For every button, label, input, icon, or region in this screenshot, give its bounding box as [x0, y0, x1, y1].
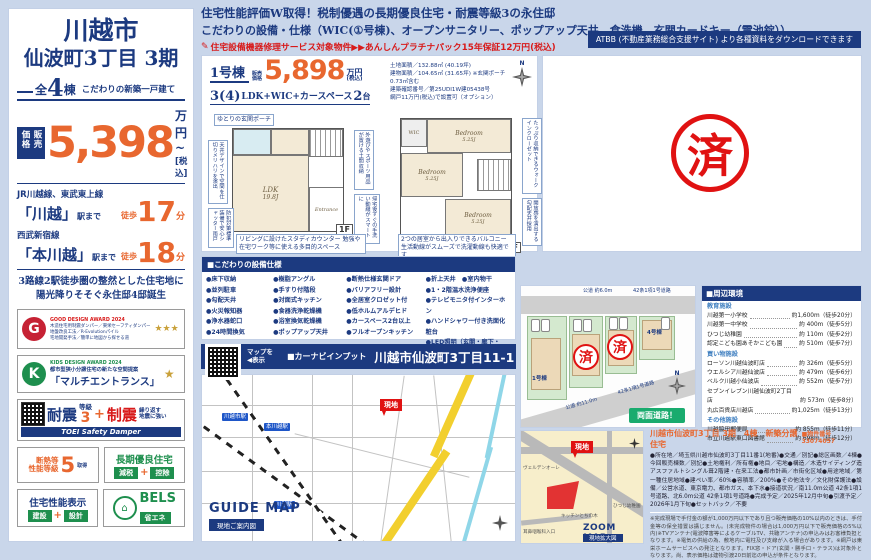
price-tax: [税込] — [175, 155, 187, 179]
good-design-line-3: 宅地開発手法／簡単に地図から探せる道 — [50, 335, 150, 341]
poi-label: ひつじ幼稚園 — [613, 503, 641, 509]
taishin-grade-number: 3 — [81, 411, 91, 425]
bedroom-label: Bedroom — [464, 212, 492, 219]
floorplan-1f: LDK 19.8J Entrance 1F — [232, 128, 344, 232]
bedroom-3: Bedroom 5.25J — [445, 199, 511, 237]
bedroom-size: 5.25J — [425, 176, 438, 182]
equipment-item: ●火災報知器 — [206, 307, 273, 318]
dannetsu-number: 5 — [60, 453, 75, 477]
callout-porch: ゆとりの玄関ポーチ — [214, 114, 274, 126]
access-to-2: 駅まで — [92, 252, 116, 263]
unit-price: 5,898 — [264, 60, 344, 83]
equipment-item: ●浴室換気乾燥機 — [273, 317, 346, 328]
bedroom-label: Bedroom — [455, 130, 483, 137]
compass-icon: N — [511, 60, 533, 91]
seishin-label: 制震 — [107, 404, 137, 425]
env-row: 川越第一中学校約 400m（徒歩5分） — [707, 321, 856, 330]
bathroom — [233, 129, 271, 155]
equipment-item: ●浄水器蛇口 — [206, 317, 273, 328]
road-top — [521, 296, 696, 314]
toei-safety-damper-bar: TOEI Safety Damper — [21, 427, 181, 437]
stairs-1f — [309, 129, 343, 157]
access-block: JR川越線、東武東上線 「川越」 駅まで 徒歩 17 分 西武新宿線 「本川越」… — [17, 183, 185, 270]
bedroom-size: 5.25J — [462, 137, 475, 143]
price-unit: 万円~ — [175, 107, 187, 155]
carnavi-label: ■カーナビインプット — [287, 351, 366, 362]
equipment-item: ●断熱仕様玄関ドア — [346, 275, 425, 286]
equipment-item: ●床下収納 — [206, 275, 273, 286]
overview-title: 川越市仙波町3丁目 3期 4棟 新築分譲住宅 — [650, 428, 802, 450]
catch-line-1: 3路線2駅徒歩圏の整然とした住宅地に — [17, 275, 185, 289]
sold-stamp-lot3: 済 — [607, 334, 633, 360]
lot-4-label: 4号棟 — [647, 328, 662, 336]
price-label: 販売価格 — [17, 127, 45, 159]
plan-type: LDK+WIC+カースペース — [241, 89, 352, 102]
star-icon: ★★★ — [154, 325, 168, 334]
ldk-size: 19.8J — [263, 194, 279, 201]
env-group-education: 教育施設 — [707, 302, 856, 312]
choki-badge: 長期優良住宅 減税 + 控除 — [104, 447, 185, 483]
car-icon — [541, 319, 550, 332]
double-road-badge: 両面道路！ — [629, 408, 685, 423]
taishin-label: 耐震 — [47, 404, 77, 425]
environment-title: ■周辺環境 — [702, 286, 861, 301]
zoom-map: 現地 ヴェルデンオーレ キッチンとちの木 ひつじ幼稚園 耳鼻咽喉科入口 ZOOM… — [520, 430, 644, 544]
station-kawagoeshi: 川越市駅 — [222, 413, 248, 421]
equipment-card: ■こだわりの設備仕様 ●床下収納 ●並列駐車 ●勾配天井 ●火災報知器 ●浄水器… — [201, 256, 516, 340]
walk-unit-1: 分 — [176, 209, 185, 222]
env-row: ひつじ幼稚園約 110m（徒歩2分） — [707, 331, 856, 340]
land-area: 土地面積／132.88㎡ (40.19坪) — [390, 62, 508, 70]
kitchen — [271, 129, 309, 155]
overview-block: 川越市仙波町3丁目 3期 4棟 新築分譲住宅 ■物件番号 33074057 ●所… — [650, 428, 862, 546]
plus-icon: + — [94, 407, 105, 422]
car-icon — [573, 319, 582, 332]
city-title: 川越市 — [17, 17, 185, 46]
car-icon — [609, 317, 618, 330]
env-group-other: その他施設 — [707, 416, 856, 426]
compass-n-label: N — [511, 60, 533, 67]
screen-option: 網戸11万円(税込)で設置可（オプション） — [390, 94, 508, 102]
flyer-page: 川越市 仙波町3丁目 3期 全 4 棟 こだわりの新築一戸建て 販売価格 5,3… — [0, 0, 871, 550]
hyoji-title: 住宅性能表示 — [29, 495, 86, 509]
equipment-item: ●ポップアップ天井 — [273, 328, 346, 339]
ldk-label: LDK — [263, 186, 279, 194]
car-icon — [661, 317, 670, 330]
kids-design-line-1: 都市型狭小分譲住宅の新たな空間提案 — [50, 366, 160, 373]
env-row: ウエルシア川越仙波店約 479m（徒歩6分） — [707, 369, 856, 378]
site-plan: 公道 約6.0m 42条1項1号道路 公道 約11.0m 42条1項1号道路 1… — [520, 285, 696, 428]
poi-label: 耳鼻咽喉科入口 — [523, 529, 555, 535]
walk-min-1: 17 — [137, 200, 176, 224]
equipment-title: ■こだわりの設備仕様 — [202, 257, 515, 272]
equipment-item: ●全居室クロゼット付 — [346, 296, 425, 307]
wic-room: WIC — [401, 119, 427, 147]
river-line — [459, 447, 493, 542]
road-top-name: 42条1項1号道路 — [633, 287, 671, 294]
overview-disclaimer: ※完成現場で手付金の額が1,000万円以下であり且つ販売価格の10%以内のときは… — [650, 516, 862, 560]
walk-label-1: 徒歩 — [121, 210, 137, 221]
choki-kojo-label: 控除 — [150, 467, 174, 479]
top-header: 住宅性能評価W取得！税制優遇の長期優良住宅・耐震等級3の永住邸 こだわりの設備・… — [201, 5, 863, 53]
env-row: ベルク川越小仙波店約 552m（徒歩7分） — [707, 378, 856, 387]
seishin-sub-2: 地震に強い — [139, 414, 167, 420]
equipment-item: ●樹脂アングル — [273, 275, 346, 286]
overview-body: ●所在地／埼玉県川越市仙波町3丁目11番1(地番)●交通／別記●総区画数／4棟●… — [650, 452, 862, 509]
bels-shoene-label: 省エネ — [140, 512, 171, 524]
atbb-banner: ATBB (不動産業務総合支援サイト) より各種資料をダウンロードできます — [588, 31, 861, 48]
bedroom-2: Bedroom 5.25J — [401, 153, 463, 197]
house-1 — [531, 338, 561, 390]
good-design-badge: G GOOD DESIGN AWARD 2024 木造住宅用制震ダンパー／東栄セ… — [17, 309, 185, 349]
plus-icon: + — [140, 467, 148, 478]
site-polygon — [547, 481, 579, 509]
plan-cars: 2 — [353, 91, 362, 103]
taishin-seishin-badge: 耐震 等級 3 + 制震 繰り返す 地震に強い TOEI Safety Damp… — [17, 399, 185, 441]
price-value: 5,398 — [47, 123, 173, 164]
kids-design-badge: K KIDS DESIGN AWARD 2024 都市型狭小分譲住宅の新たな空間… — [17, 355, 185, 393]
env-row: 川越第一小学校約1,600m（徒歩20分） — [707, 312, 856, 321]
car-icon — [583, 319, 592, 332]
access-row-2: 西武新宿線 「本川越」 駅まで 徒歩 18 分 — [17, 229, 185, 265]
car-icon — [619, 317, 628, 330]
equipment-item: ●手すり付階段 — [273, 286, 346, 297]
bels-title: BELS — [140, 492, 176, 505]
catch-line-2: 陽光降りそそぐ永住邸4邸誕生 — [17, 289, 185, 303]
equipment-item: ●勾配天井 — [206, 296, 273, 307]
site-marker: 現地 — [571, 441, 593, 453]
qr-code-icon — [205, 344, 241, 380]
header-line-3: 住宅設備機器修理サービス対象物件▶▶あんしんプラチナパック15年保証12万円(税… — [211, 40, 556, 53]
stairs-2f — [477, 159, 511, 191]
callout-v6: 開放感を演出する勾配天井採用 — [522, 198, 542, 246]
callout-v3: 外遊びやスポーツ用品が置ける土間収納 — [354, 130, 374, 190]
floorplan-2f: WIC Bedroom 5.25J Bedroom 5.25J Bedroom … — [400, 118, 512, 238]
ldk-room: LDK 19.8J — [233, 155, 309, 231]
property-number: ■物件番号 33074057 — [802, 429, 862, 445]
callout-v5: たっぷり収納できるウォークインクローゼット — [522, 118, 542, 194]
callout-v2: 防犯対策標準装備で安心シャッター雨戸 — [208, 208, 234, 248]
equipment-item: ●フルオープンキッチン — [346, 328, 425, 339]
compass-icon — [492, 515, 508, 535]
compass-icon: N — [667, 370, 687, 399]
equipment-item: ●24時間換気 — [206, 328, 273, 339]
railway-line — [218, 374, 352, 542]
guide-map: 川越市駅 本川越駅 川越駅 現地 GUIDE MAP 現地ご案内図 — [201, 374, 516, 542]
pencil-icon: ✎ — [201, 42, 209, 52]
lot-details: 土地面積／132.88㎡ (40.19坪) 建物面積／104.65㎡ (31.6… — [390, 62, 508, 102]
carnavi-bar: マップを ◀表示 ■カーナビインプット 川越市仙波町3丁目11-1 — [201, 344, 516, 369]
dannetsu-badge: 断熱等 性能等級 5 取得 — [17, 447, 99, 483]
kids-design-logo-icon: K — [22, 362, 46, 386]
price-unit-block: 万円~ [税込] — [175, 107, 187, 179]
count-number: 4 — [47, 77, 64, 99]
sidebar: 川越市 仙波町3丁目 3期 全 4 棟 こだわりの新築一戸建て 販売価格 5,3… — [8, 8, 194, 542]
dannetsu-line-2: 性能等級 — [28, 465, 58, 473]
equipment-item: ●低ホルムアルデヒド — [346, 307, 425, 318]
sold-stamp: 済 — [671, 114, 749, 192]
star-icon: ★ — [164, 367, 175, 381]
dash-decoration — [17, 91, 33, 93]
kids-design-title: 「マルチエントランス」 — [50, 373, 160, 388]
price-row: 販売価格 5,398 万円~ [税込] — [17, 107, 185, 179]
station-honkawagoe: 本川越駅 — [264, 423, 290, 431]
zoom-map-subtitle: 現地拡大図 — [583, 534, 623, 542]
access-row-1: JR川越線、東武東上線 「川越」 駅まで 徒歩 17 分 — [17, 188, 185, 224]
access-to-1: 駅まで — [77, 211, 101, 222]
equipment-item: ●折上天井 ●室内物干 — [426, 275, 511, 286]
access-station-1: 「川越」 — [17, 203, 77, 224]
env-row: ローソン川越仙波町店約 326m（徒歩5分） — [707, 360, 856, 369]
callout-v1: 天井デザインで空間を仕切りメリハリを演出 — [208, 140, 228, 204]
dannetsu-get-label: 取得 — [77, 462, 87, 469]
plan-rooms: 3(4) — [210, 91, 240, 103]
equipment-item: ●ハンドシャワー付き洗面化粧台 — [426, 317, 511, 338]
plus-icon: + — [54, 510, 62, 521]
building-area: 建物面積／104.65㎡ (31.65坪) ※玄関ポーチ0.73㎡含む — [390, 70, 508, 86]
count-prefix: 全 — [35, 81, 47, 98]
unit-price-tax: (税込) — [346, 77, 362, 83]
catch-copy: 3路線2駅徒歩圏の整然とした住宅地に 陽光降りそそぐ永住邸4邸誕生 — [17, 275, 185, 304]
walk-min-2: 18 — [137, 241, 176, 265]
environment-card: ■周辺環境 教育施設 川越第一小学校約1,600m（徒歩20分） 川越第一中学校… — [701, 285, 862, 428]
site-marker: 現地 — [380, 399, 402, 411]
choki-genzei-label: 減税 — [114, 467, 138, 479]
equipment-item: ●並列駐車 — [206, 286, 273, 297]
equipment-item: ●食器洗浄乾燥機 — [273, 307, 346, 318]
bedroom-size: 5.25J — [471, 219, 484, 225]
plan-cars-unit: 台 — [362, 91, 370, 102]
tagline: こだわりの新築一戸建て — [82, 83, 176, 95]
car-icon — [531, 319, 540, 332]
hyoji-kensetsu-label: 建設 — [28, 510, 52, 522]
equipment-item: ●バリアフリー設計 — [346, 286, 425, 297]
sold-stamp-lot2: 済 — [573, 344, 599, 370]
callout-study: リビングに設けたスタディカウンター 勉強や在宅ワーク等に使える多目的スペース — [236, 234, 366, 254]
river-line — [485, 374, 508, 458]
guide-map-title: GUIDE MAP — [209, 501, 301, 516]
compass-icon — [629, 434, 640, 453]
entrance-label: Entrance — [315, 207, 338, 213]
qr-code-icon — [21, 402, 45, 426]
env-row: 丸広百貨店川越店約1,025m（徒歩13分） — [707, 407, 856, 416]
road-top-label: 公道 約6.0m — [583, 287, 612, 294]
bels-badge: ⌂ BELS 省エネ — [103, 489, 185, 527]
confirmation-number: 建築確認番号／第25UDI1W建05438号 — [390, 86, 508, 94]
wic-label: WIC — [409, 130, 420, 136]
unit-price-label-2: 価格 — [252, 77, 262, 82]
env-group-shopping: 買い物施設 — [707, 350, 856, 360]
floorplan-card: 1号棟 販売 価格 5,898 万円 (税込) 3(4) LDK+WIC+カース… — [201, 55, 538, 252]
guide-map-subtitle: 現地ご案内図 — [209, 519, 264, 531]
unit-name: 1号棟 — [210, 62, 249, 83]
project-title: 仙波町3丁目 3期 — [17, 46, 185, 70]
carnavi-address: 川越市仙波町3丁目11-1 — [374, 347, 514, 366]
hyoji-badge: 住宅性能表示 建設 + 設計 — [17, 489, 98, 527]
stamp-card: 済 — [542, 55, 862, 252]
hyoji-sekkei-label: 設計 — [64, 510, 88, 522]
access-station-2: 「本川越」 — [17, 244, 92, 265]
walk-label-2: 徒歩 — [121, 251, 137, 262]
poi-label: キッチンとちの木 — [561, 513, 598, 519]
choki-title: 長期優良住宅 — [116, 452, 173, 466]
env-row: 認定こども園あそかこども園約 510m（徒歩7分） — [707, 340, 856, 349]
good-design-logo-icon: G — [22, 317, 46, 341]
bedroom-1: Bedroom 5.25J — [427, 119, 511, 153]
compass-n-label: N — [667, 370, 687, 377]
equipment-item: ●対面式キッチン — [273, 296, 346, 307]
env-row: セブンイレブン川越仙波町2丁目店約 573m（徒歩8分） — [707, 388, 856, 407]
equipment-item: ●カースペース2台以上 — [346, 317, 425, 328]
equipment-item: ●テレビモニタ付インターホン — [426, 296, 511, 317]
lot-1-label: 1号棟 — [532, 374, 547, 382]
bedroom-label: Bedroom — [418, 169, 446, 176]
walk-unit-2: 分 — [176, 250, 185, 263]
header-line-1: 住宅性能評価W取得！税制優遇の長期優良住宅・耐震等級3の永住邸 — [201, 5, 863, 21]
unit-count-row: 全 4 棟 こだわりの新築一戸建て — [17, 73, 185, 102]
overview-divider — [650, 512, 862, 513]
count-suffix: 棟 — [64, 81, 76, 98]
equipment-item: ●1・2階温水洗浄便座 — [426, 286, 511, 297]
map-show-label-2: ◀表示 — [247, 357, 273, 364]
bels-leaf-icon: ⌂ — [113, 496, 137, 520]
poi-label: ヴェルデンオーレ — [523, 465, 560, 471]
